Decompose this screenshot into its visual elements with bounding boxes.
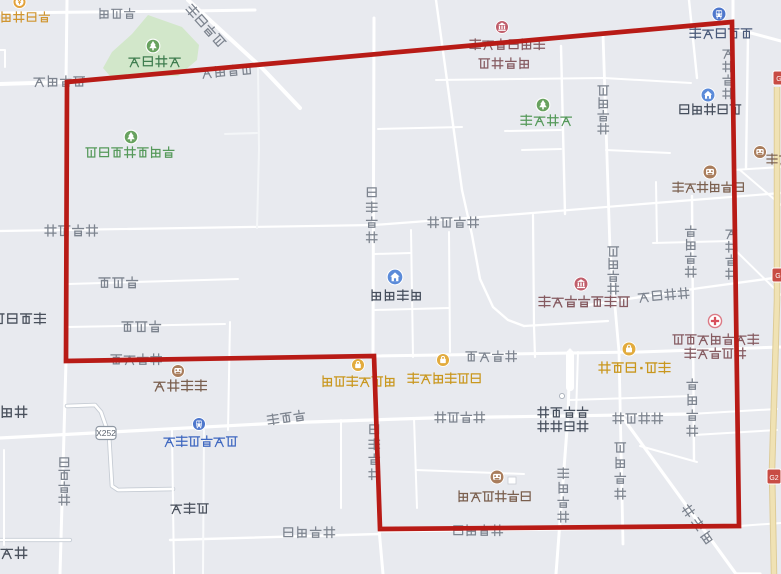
svg-text:G2: G2 bbox=[769, 475, 778, 482]
svg-text:G: G bbox=[776, 76, 781, 83]
svg-text:X252: X252 bbox=[96, 428, 116, 438]
svg-text:G: G bbox=[775, 273, 780, 280]
